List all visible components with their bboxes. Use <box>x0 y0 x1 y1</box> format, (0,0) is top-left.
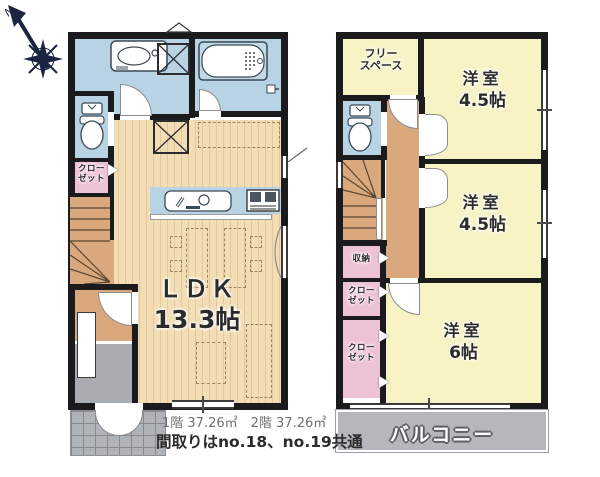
room-45b-label: 洋室 <box>424 194 541 212</box>
floorplan-canvas: N <box>0 0 600 477</box>
window <box>541 190 548 258</box>
window-swing-arc <box>268 226 282 278</box>
bathtub-icon <box>198 41 268 81</box>
cupboard-outline <box>198 122 280 148</box>
bath-faucet-icon <box>265 82 279 96</box>
ldk-size-label: 13.3帖 <box>132 306 262 334</box>
chair-outline <box>250 236 262 248</box>
ldk-room-label: ＬＤＫ <box>132 276 262 303</box>
floor1-closet-label: クロー ゼット <box>75 165 108 184</box>
door-opening <box>381 112 387 146</box>
chair-outline <box>170 260 182 272</box>
washer-cross-box <box>157 43 190 75</box>
compass-north-icon: N <box>2 2 64 90</box>
window <box>281 226 288 278</box>
toilet-icon <box>347 104 373 154</box>
balcony-label: バルコニー <box>336 420 548 447</box>
room-45a-door-arc <box>425 114 448 156</box>
layout-note-text: 間取りはno.18、no.19共通 <box>156 430 363 452</box>
floor2-closet-a-label: クロー ゼット <box>343 287 380 306</box>
floor-area-text: 1階 37.26㎡ 2階 37.26㎡ <box>162 412 326 431</box>
room-45a-label: 洋室 <box>424 70 541 88</box>
front-door-opening <box>95 403 143 410</box>
table-outline <box>196 342 226 384</box>
room-45b-size: 4.5帖 <box>424 216 541 235</box>
window <box>281 156 288 178</box>
storage-label: 収納 <box>343 255 380 265</box>
stair-rail <box>376 198 382 240</box>
kitchen-sink-icon <box>164 190 232 212</box>
roof-vent-marker <box>166 22 192 33</box>
stove-icon <box>246 189 280 212</box>
window-vent-line <box>288 146 308 162</box>
kitchen-counter-edge <box>150 214 272 220</box>
wall <box>418 39 424 97</box>
chair-outline <box>250 260 262 272</box>
wall <box>381 160 385 198</box>
door-opening <box>108 112 114 146</box>
fridge-cross-box <box>153 120 189 154</box>
room-45a-size: 4.5帖 <box>424 92 541 111</box>
chair-outline <box>170 236 182 248</box>
shoe-cabinet <box>77 312 96 378</box>
room-6-label: 洋室 <box>386 322 541 340</box>
window <box>336 162 343 188</box>
window-tick <box>537 222 552 224</box>
sofa-outline <box>246 324 272 398</box>
wall <box>424 159 541 164</box>
room-6-size: 6帖 <box>386 344 541 363</box>
closet-door-marker <box>379 376 389 388</box>
toilet-icon <box>79 102 105 152</box>
floor2-closet-b-label: クロー ゼット <box>343 344 380 363</box>
balcony-door-window <box>350 403 510 410</box>
window-tick <box>202 396 204 413</box>
wall <box>424 278 541 283</box>
floor1-stairs <box>70 197 110 284</box>
window-tick <box>537 109 552 111</box>
door-opening <box>199 111 221 117</box>
closet-door-marker <box>379 252 389 264</box>
closet-door-marker <box>108 164 118 176</box>
free-space-label: フリー スペース <box>343 48 419 73</box>
